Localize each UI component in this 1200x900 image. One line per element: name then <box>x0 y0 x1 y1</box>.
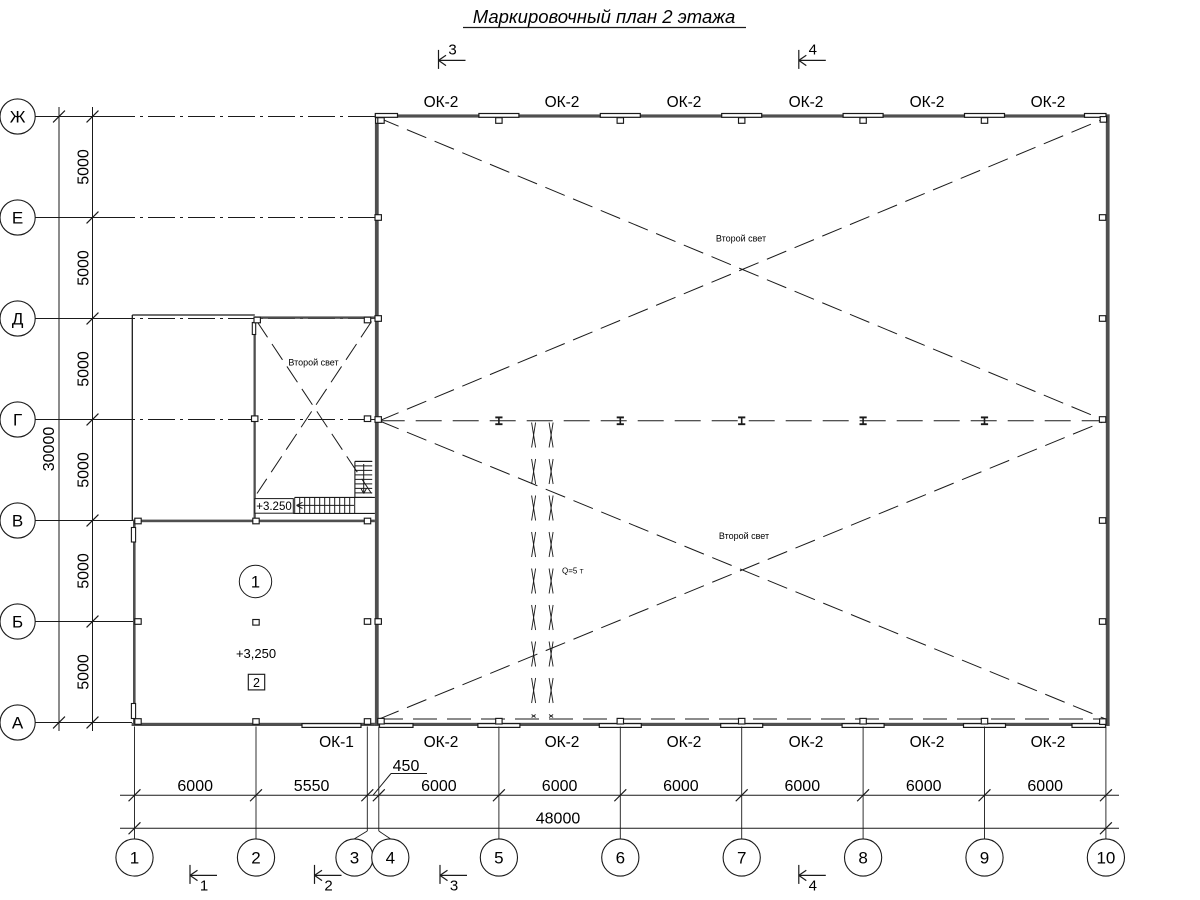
svg-text:2: 2 <box>253 676 260 690</box>
svg-text:Е: Е <box>12 209 23 228</box>
svg-text:4: 4 <box>809 877 817 894</box>
svg-text:Д: Д <box>12 310 24 329</box>
svg-text:7: 7 <box>737 849 746 868</box>
svg-text:3: 3 <box>350 849 359 868</box>
svg-text:+3.250: +3.250 <box>256 501 292 513</box>
svg-text:10: 10 <box>1096 849 1115 868</box>
svg-text:Б: Б <box>12 613 23 632</box>
svg-text:1: 1 <box>130 849 139 868</box>
svg-text:В: В <box>12 512 23 531</box>
svg-text:450: 450 <box>393 758 420 775</box>
svg-text:5000: 5000 <box>76 149 93 185</box>
svg-text:ОК-2: ОК-2 <box>910 734 945 751</box>
svg-text:ОК-2: ОК-2 <box>667 94 702 111</box>
svg-text:6: 6 <box>616 849 625 868</box>
svg-text:6000: 6000 <box>785 778 821 795</box>
svg-text:5000: 5000 <box>76 452 93 488</box>
svg-text:Маркировочный план 2 этажа: Маркировочный план 2 этажа <box>473 6 736 27</box>
svg-text:6000: 6000 <box>421 778 457 795</box>
svg-text:1: 1 <box>251 574 260 592</box>
svg-text:30000: 30000 <box>41 427 58 472</box>
svg-text:ОК-2: ОК-2 <box>667 734 702 751</box>
svg-text:ОК-2: ОК-2 <box>545 734 580 751</box>
svg-text:6000: 6000 <box>663 778 699 795</box>
svg-text:6000: 6000 <box>177 778 213 795</box>
svg-text:5550: 5550 <box>294 778 330 795</box>
svg-text:ОК-2: ОК-2 <box>789 734 824 751</box>
svg-text:А: А <box>12 714 24 733</box>
svg-text:ОК-2: ОК-2 <box>424 734 459 751</box>
svg-text:Второй свет: Второй свет <box>716 234 766 244</box>
svg-text:ОК-2: ОК-2 <box>1031 94 1066 111</box>
svg-text:2: 2 <box>324 877 332 894</box>
svg-text:ОК-2: ОК-2 <box>910 94 945 111</box>
svg-text:3: 3 <box>450 877 458 894</box>
svg-text:Второй свет: Второй свет <box>719 531 769 541</box>
svg-text:9: 9 <box>980 849 989 868</box>
svg-text:5000: 5000 <box>76 654 93 690</box>
svg-text:Второй свет: Второй свет <box>288 358 338 368</box>
svg-text:6000: 6000 <box>542 778 578 795</box>
svg-text:ОК-2: ОК-2 <box>545 94 580 111</box>
svg-text:ОК-1: ОК-1 <box>319 734 354 751</box>
svg-text:ОК-2: ОК-2 <box>424 94 459 111</box>
svg-text:6000: 6000 <box>906 778 942 795</box>
svg-text:5000: 5000 <box>76 351 93 387</box>
svg-text:4: 4 <box>809 41 817 58</box>
svg-text:ОК-2: ОК-2 <box>789 94 824 111</box>
svg-text:3: 3 <box>448 41 456 58</box>
svg-text:1: 1 <box>200 877 208 894</box>
svg-text:2: 2 <box>251 849 260 868</box>
svg-text:Г: Г <box>13 411 22 430</box>
svg-text:5000: 5000 <box>76 250 93 286</box>
svg-text:Ж: Ж <box>10 108 26 127</box>
svg-text:5000: 5000 <box>76 553 93 589</box>
svg-text:48000: 48000 <box>536 811 581 828</box>
svg-text:8: 8 <box>858 849 867 868</box>
svg-text:5: 5 <box>494 849 503 868</box>
svg-text:ОК-2: ОК-2 <box>1031 734 1066 751</box>
svg-text:4: 4 <box>386 849 395 868</box>
svg-text:Q=5 Т: Q=5 Т <box>562 567 584 576</box>
svg-text:6000: 6000 <box>1027 778 1063 795</box>
svg-text:+3,250: +3,250 <box>236 646 276 661</box>
